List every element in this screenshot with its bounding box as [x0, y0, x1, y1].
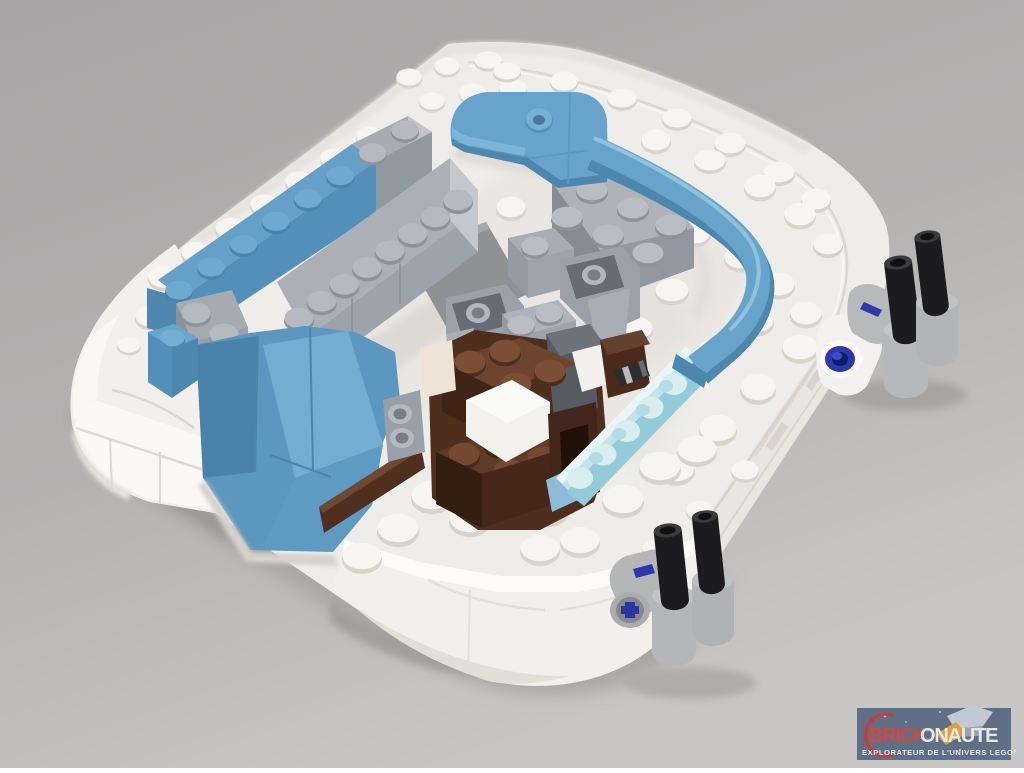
svg-text:EXPLORATEUR DE L'UNIVERS LEGO°: EXPLORATEUR DE L'UNIVERS LEGO°	[862, 748, 1017, 757]
svg-text:ONAUTE: ONAUTE	[920, 725, 998, 747]
